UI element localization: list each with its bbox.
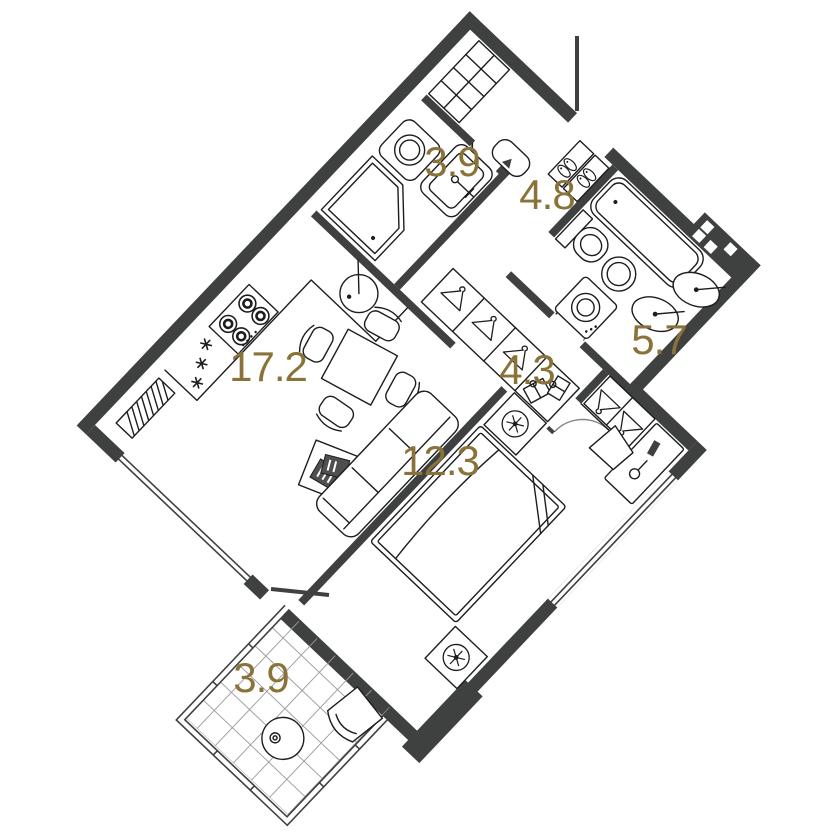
label-bedroom: 12.3 [401, 437, 479, 484]
bedroom-window [547, 471, 678, 608]
balcony-door-leaf [271, 589, 329, 595]
label-corridor: 4.3 [499, 346, 554, 393]
room-bathroom-top [321, 103, 496, 280]
label-hallway: 4.8 [519, 171, 574, 218]
label-bathroom-main: 5.7 [631, 316, 686, 363]
balcony-table-icon [253, 709, 312, 768]
wall-pier [402, 680, 483, 763]
floor-plan-page: 17.2 3.9 4.8 5.7 4.3 12.3 3.9 [0, 0, 840, 840]
balcony [176, 605, 396, 825]
kitchen-hood-marks [175, 336, 229, 390]
chair-icon [362, 303, 405, 344]
label-bathroom-top: 3.9 [424, 138, 479, 185]
living-window [115, 453, 253, 585]
label-balcony: 3.9 [233, 654, 288, 701]
floor-plan: 17.2 3.9 4.8 5.7 4.3 12.3 3.9 [0, 0, 840, 840]
kitchen-sink-icon [328, 260, 389, 321]
chair-icon [310, 391, 360, 438]
label-kitchen-living: 17.2 [229, 343, 307, 390]
